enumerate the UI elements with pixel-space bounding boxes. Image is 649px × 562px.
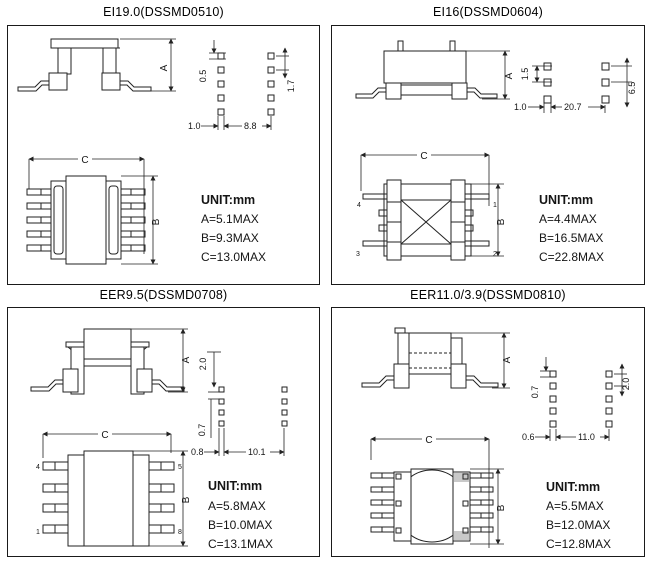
pad (606, 421, 612, 427)
front-view-drawing: C B (371, 435, 507, 548)
pad (219, 421, 224, 426)
dim-b-label: B (181, 496, 192, 503)
pad (268, 53, 274, 59)
unit-dim-c: C=12.8MAX (546, 537, 611, 551)
pad (218, 53, 224, 59)
pad-dim-h-span: 10.1 (248, 447, 266, 457)
unit-block: UNIT:mm A=4.4MAX B=16.5MAX C=22.8MAX (539, 193, 604, 264)
side-view-drawing (356, 41, 497, 99)
panel-ei19-drawing: A 0.5 1.7 1.0 8.8 C (8, 26, 319, 284)
pad-layout: 1.5 6.5 1.0 20.7 (514, 58, 637, 113)
front-view-drawing: C B (27, 155, 162, 264)
pin-label-top-left: 4 (36, 464, 40, 471)
unit-dim-a: A=4.4MAX (539, 212, 597, 226)
pad (282, 387, 287, 392)
pad (282, 410, 287, 415)
pad-dim-v-left: 0.7 (197, 424, 207, 437)
unit-dim-a: A=5.5MAX (546, 499, 604, 513)
unit-dim-b: B=12.0MAX (546, 518, 610, 532)
pad (268, 95, 274, 101)
panel-title-ei19: EI19.0(DSSMD0510) (7, 5, 320, 19)
pad (218, 95, 224, 101)
pad-dim-h-left: 1.0 (188, 121, 201, 131)
pad-dim-h-span: 11.0 (578, 432, 595, 442)
unit-heading: UNIT:mm (539, 193, 593, 207)
dim-b-label: B (151, 218, 162, 225)
pad-dim-v-left: 1.5 (520, 68, 530, 81)
pad (606, 408, 612, 414)
unit-dim-c: C=13.0MAX (201, 250, 266, 264)
pad (219, 410, 224, 415)
dim-c-label: C (420, 151, 427, 162)
pad (218, 81, 224, 87)
pad (606, 371, 612, 377)
dim-a: A (120, 39, 176, 91)
unit-dim-c: C=22.8MAX (539, 250, 604, 264)
pad (219, 387, 224, 392)
front-view-drawing: C 4 1 5 8 B (36, 430, 192, 546)
pad-dim-v-right: 2.0 (621, 378, 631, 391)
pin-label-top-left: 4 (357, 202, 361, 209)
side-view-drawing (18, 39, 151, 91)
pad (268, 81, 274, 87)
pad (602, 96, 609, 103)
panel-eer11-drawing: A 0.7 2.0 0.6 11.0 C (332, 308, 644, 556)
pin-label-top-right: 5 (178, 464, 182, 471)
dim-a-label: A (159, 64, 170, 71)
pin-label-bottom-right: 2 (493, 251, 497, 258)
pad-dim-v-left: 0.7 (530, 386, 540, 399)
unit-dim-c: C=13.1MAX (208, 537, 273, 551)
dim-b-label: B (496, 218, 507, 225)
dim-a-label: A (502, 356, 513, 363)
pad (218, 67, 224, 73)
unit-dim-b: B=16.5MAX (539, 231, 603, 245)
panel-ei16-drawing: A 1.5 6.5 1.0 20.7 C (332, 26, 644, 284)
pad-layout: 0.5 1.7 1.0 8.8 (188, 40, 296, 131)
pad (219, 399, 224, 404)
unit-heading: UNIT:mm (546, 480, 600, 494)
panel-eer9-5: A 2.0 0.7 0.8 10.1 C (7, 307, 320, 557)
unit-heading: UNIT:mm (201, 193, 255, 207)
pad (550, 383, 556, 389)
pin-label-bottom-left: 1 (36, 529, 40, 536)
pad (550, 396, 556, 402)
unit-heading: UNIT:mm (208, 479, 262, 493)
pad (606, 383, 612, 389)
panel-title-eer11: EER11.0/3.9(DSSMD0810) (331, 288, 645, 302)
pad-dim-h-left: 0.8 (191, 447, 204, 457)
pad (282, 399, 287, 404)
unit-block: UNIT:mm A=5.1MAX B=9.3MAX C=13.0MAX (201, 193, 266, 264)
pad-dim-v-right: 1.7 (286, 80, 296, 93)
pad-dim-h-span: 20.7 (564, 102, 582, 112)
front-view-drawing: C 4 3 1 2 B (356, 151, 507, 260)
pad-dim-v-left: 0.5 (198, 70, 208, 83)
panel-title-eer9-5: EER9.5(DSSMD0708) (7, 288, 320, 302)
pad-dim-v-right: 6.5 (627, 82, 637, 95)
dim-a-label: A (504, 72, 515, 79)
pad (282, 421, 287, 426)
pad (550, 371, 556, 377)
pad (602, 79, 609, 86)
pad-dim-h-span: 8.8 (244, 121, 257, 131)
pad (550, 408, 556, 414)
unit-block: UNIT:mm A=5.5MAX B=12.0MAX C=12.8MAX (546, 480, 611, 551)
pad (544, 63, 551, 70)
pad (602, 63, 609, 70)
dim-c-label: C (101, 430, 108, 441)
dim-a-label: A (181, 356, 192, 363)
panel-title-ei16: EI16(DSSMD0604) (331, 5, 645, 19)
dim-c-label: C (81, 155, 88, 166)
pin-label-bottom-left: 3 (356, 251, 360, 258)
pad-dim-v-top: 2.0 (198, 358, 208, 371)
pad (268, 67, 274, 73)
panel-eer9-5-drawing: A 2.0 0.7 0.8 10.1 C (8, 308, 319, 556)
pad (218, 109, 224, 115)
unit-dim-a: A=5.1MAX (201, 212, 259, 226)
pad-dim-h-left: 0.6 (522, 432, 535, 442)
pad-layout: 0.7 2.0 0.6 11.0 (522, 357, 631, 442)
unit-block: UNIT:mm A=5.8MAX B=10.0MAX C=13.1MAX (208, 479, 273, 551)
dim-b-label: B (496, 504, 507, 511)
pad (606, 396, 612, 402)
pin-label-top-right: 1 (493, 202, 497, 209)
dim-c-label: C (425, 435, 432, 446)
pad (268, 109, 274, 115)
pad (544, 96, 551, 103)
unit-dim-b: B=9.3MAX (201, 231, 259, 245)
pad-layout: 2.0 0.7 0.8 10.1 (191, 352, 287, 457)
pin-label-bottom-right: 8 (178, 529, 182, 536)
pad (550, 421, 556, 427)
pad (544, 79, 551, 86)
panel-eer11: A 0.7 2.0 0.6 11.0 C (331, 307, 645, 557)
panel-ei19: A 0.5 1.7 1.0 8.8 C (7, 25, 320, 285)
pad-dim-h-left: 1.0 (514, 102, 527, 112)
side-view-drawing (31, 329, 184, 394)
unit-dim-a: A=5.8MAX (208, 499, 266, 513)
unit-dim-b: B=10.0MAX (208, 518, 272, 532)
panel-ei16: A 1.5 6.5 1.0 20.7 C (331, 25, 645, 285)
side-view-drawing (362, 328, 498, 388)
